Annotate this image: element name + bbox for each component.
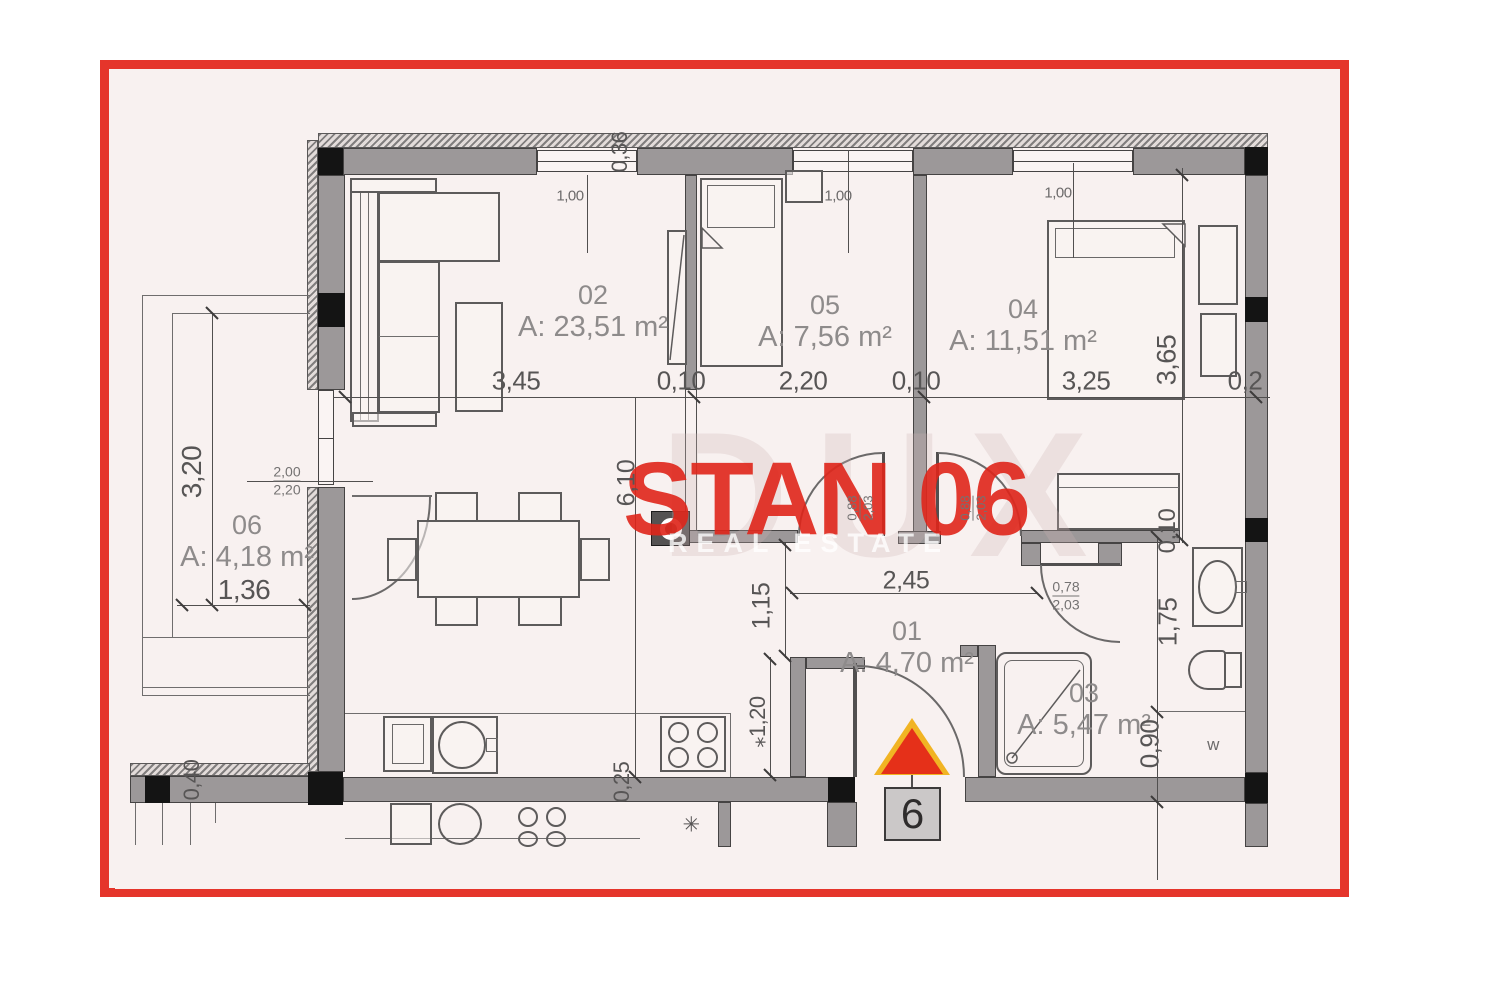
balcony-outline-left [142,295,143,695]
dim-010c: 0,10 [1154,509,1182,554]
dining-chair-top2 [518,492,562,522]
balcony-door-label: 2,00 2,20 [273,464,300,499]
room-01-number: 01 [840,616,974,647]
dining-chair-top1 [435,492,478,522]
balcony-door-w: 2,00 [273,464,300,481]
washer-label: w [1207,735,1219,755]
unit-number: 6 [901,790,924,838]
kitchen-cabinet-inner [392,724,424,764]
entrance-marker-triangle [881,728,943,774]
floor-plan-canvas: DUX STAN 06 REAL ESTATE 02 A: 23,51 m² 0… [0,0,1500,1002]
kitchen-sink-bowl [438,721,486,769]
neighbor-cabinet [390,803,432,845]
nightstand05 [785,170,823,203]
watermark-realestate: REAL ESTATE [668,528,950,559]
bath-sink-basin [1198,560,1237,614]
dining-chair-bottom2 [518,596,562,626]
dim-610: 6,10 [613,460,642,507]
dining-chair-right [580,538,610,581]
dim-345: 3,45 [492,366,541,397]
kitchen-counter-end [730,713,731,777]
dim-120: ⁎1,20 [745,696,771,747]
kitchen-counter-edge [345,713,731,714]
neighbor-sink [438,803,482,845]
toilet-bowl [1188,650,1226,690]
bath-zone-divider [1159,711,1245,712]
dim-365: 3,65 [1152,335,1183,386]
left-wall-insulation-upper [307,140,318,390]
dim-025: 0,25 [609,762,635,803]
bottom-corner-block-right [1245,773,1268,803]
dining-table [417,520,580,598]
dim-window3: 1,00 [1044,185,1071,202]
balcony-line-mid [142,637,310,638]
sofa-back [350,191,379,422]
bottom-wall-seg2 [965,777,1245,802]
stove-burner2 [697,722,718,743]
bath-wall [978,645,996,777]
balcony-outline-top [142,295,310,296]
neighbor-burner4 [546,831,566,847]
unit-number-badge: 6 [884,787,941,841]
room-label-03: 03 A: 5,47 m² [1017,678,1151,742]
kitchen-faucet [486,738,498,752]
door05-w: 0,88 [845,495,860,520]
left-wall-upper [318,175,345,390]
dim-136: 1,36 [218,574,271,606]
bottom-left-block [145,776,170,803]
room-label-01: 01 A: 4,70 m² [840,616,974,680]
room-06-number: 06 [180,510,314,541]
stove-burner1 [668,722,689,743]
dim-window1: 1,00 [556,188,583,205]
left-wall-lower [318,487,345,772]
room-label-02: 02 A: 23,51 m² [518,280,668,344]
dim-115: 1,15 [748,583,777,630]
dim-02: 0,2 [1228,366,1263,397]
stove-burner3 [668,747,689,768]
room-04-area: A: 11,51 m² [949,325,1097,358]
bottom-corner-block-left [308,772,343,805]
dim-010a: 0,10 [657,366,706,397]
neighbor-line4 [215,803,216,823]
room-05-area: A: 7,56 m² [758,321,892,354]
room-label-05: 05 A: 7,56 m² [758,290,892,354]
right-wall-block2 [1245,518,1268,542]
top-wall-seg3 [913,148,1013,175]
corner-block-topright [1245,147,1268,175]
balcony-outline-top-inner [172,313,310,314]
room-label-06: 06 A: 4,18 m² [180,510,314,574]
door04-label: 0,88 2,03 [958,495,989,520]
top-wall-seg4 [1133,148,1245,175]
top-wall-insulation [318,133,1268,148]
window1-axis [587,175,588,253]
dim-245: 2,45 [883,567,930,596]
balcony-outline-bottom [142,695,310,696]
dining-chair-left [387,538,417,581]
dim-040: 0,40 [179,760,205,801]
bath-door-w: 0,78 [1052,579,1079,596]
neighbor-stub1 [718,802,731,847]
left-wall-block [318,293,345,327]
door05-label: 0,88 2,03 [845,495,876,520]
neighbor-line2 [162,803,163,845]
dim-175: 1,75 [1153,598,1184,647]
neighbor-line1 [135,803,136,845]
neighbor-burner3 [518,831,538,847]
room-02-area: A: 23,51 m² [518,311,668,344]
dim-320: 3,20 [176,446,208,499]
right-wall-block1 [1245,297,1268,322]
room-03-area: A: 5,47 m² [1017,709,1151,742]
neighbor-stub2 [827,802,857,847]
bottom-wall-seg1 [343,777,855,802]
window3-axis [1073,163,1074,258]
dim-090: 0,90 [1135,720,1166,769]
sofa-seats [378,261,440,413]
bed05-fold [700,220,730,250]
balcony-door-window [318,390,334,485]
top-wall-seg2 [637,148,793,175]
top-wall-seg1 [343,148,537,175]
room-02-number: 02 [518,280,668,311]
bath-sink-faucet [1235,581,1247,593]
dresser04-top [1198,225,1238,305]
neighbor-burner1 [518,807,538,827]
bath-door-label: 0,78 2,03 [1052,579,1079,614]
sofa-back-line1 [360,193,361,420]
room-06-area: A: 4,18 m² [180,541,314,574]
dim-window2: 1,00 [824,188,851,205]
sofa-bottom-arm [352,412,437,427]
room-04-number: 04 [949,294,1097,325]
corner-block-topleft [318,148,343,175]
kitchen-wall [790,657,806,777]
bath-partition-line [1157,537,1158,880]
room-label-04: 04 A: 11,51 m² [949,294,1097,358]
door04-w: 0,88 [958,495,973,520]
tv-cabinet-diagonal [667,230,687,365]
balcony-outline-left-inner [172,313,173,637]
neighbor-line3 [190,803,191,845]
neighbor-stub3 [1245,803,1268,847]
sofa-back-line2 [368,193,369,420]
balcony-door-h: 2,20 [273,481,300,499]
door04-h: 2,03 [973,495,989,520]
dining-chair-bottom1 [435,596,478,626]
entrance-block [828,777,855,802]
dim-220: 2,20 [779,366,828,397]
balcony-outline-bottom-inner [142,687,310,688]
neighbor-burner2 [546,807,566,827]
star-symbol: ✳ [682,813,699,838]
room-03-number: 03 [1017,678,1151,709]
sofa-chaise [378,192,500,262]
bath-door-h: 2,03 [1052,596,1079,614]
door05-h: 2,03 [860,495,876,520]
balcony-door-dimline [247,481,373,482]
bottom-left-insulation [130,763,310,776]
room-01-area: A: 4,70 m² [840,647,974,680]
window-room05 [793,150,913,172]
dim-010b: 0,10 [892,366,941,397]
right-wall [1245,175,1268,773]
room-05-number: 05 [758,290,892,321]
toilet-tank [1224,652,1242,688]
stove-burner4 [697,747,718,768]
sofa-seat-divider [379,336,439,337]
dim-wall-036: 0,36 [607,132,633,173]
dim-325: 3,25 [1062,366,1111,397]
